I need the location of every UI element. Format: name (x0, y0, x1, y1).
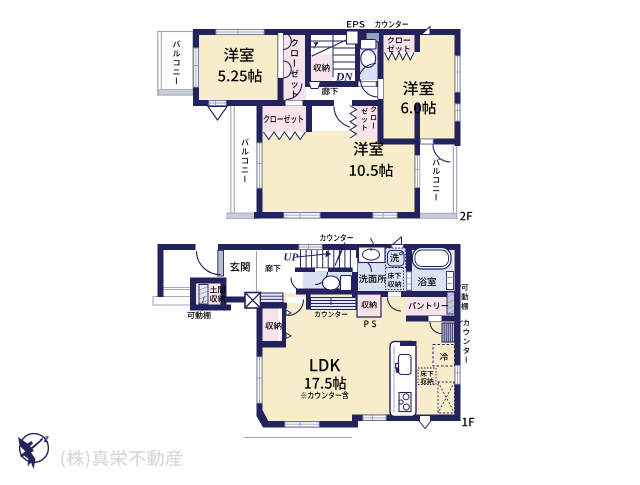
svg-text:UP: UP (284, 252, 299, 264)
svg-text:DN: DN (335, 72, 353, 84)
